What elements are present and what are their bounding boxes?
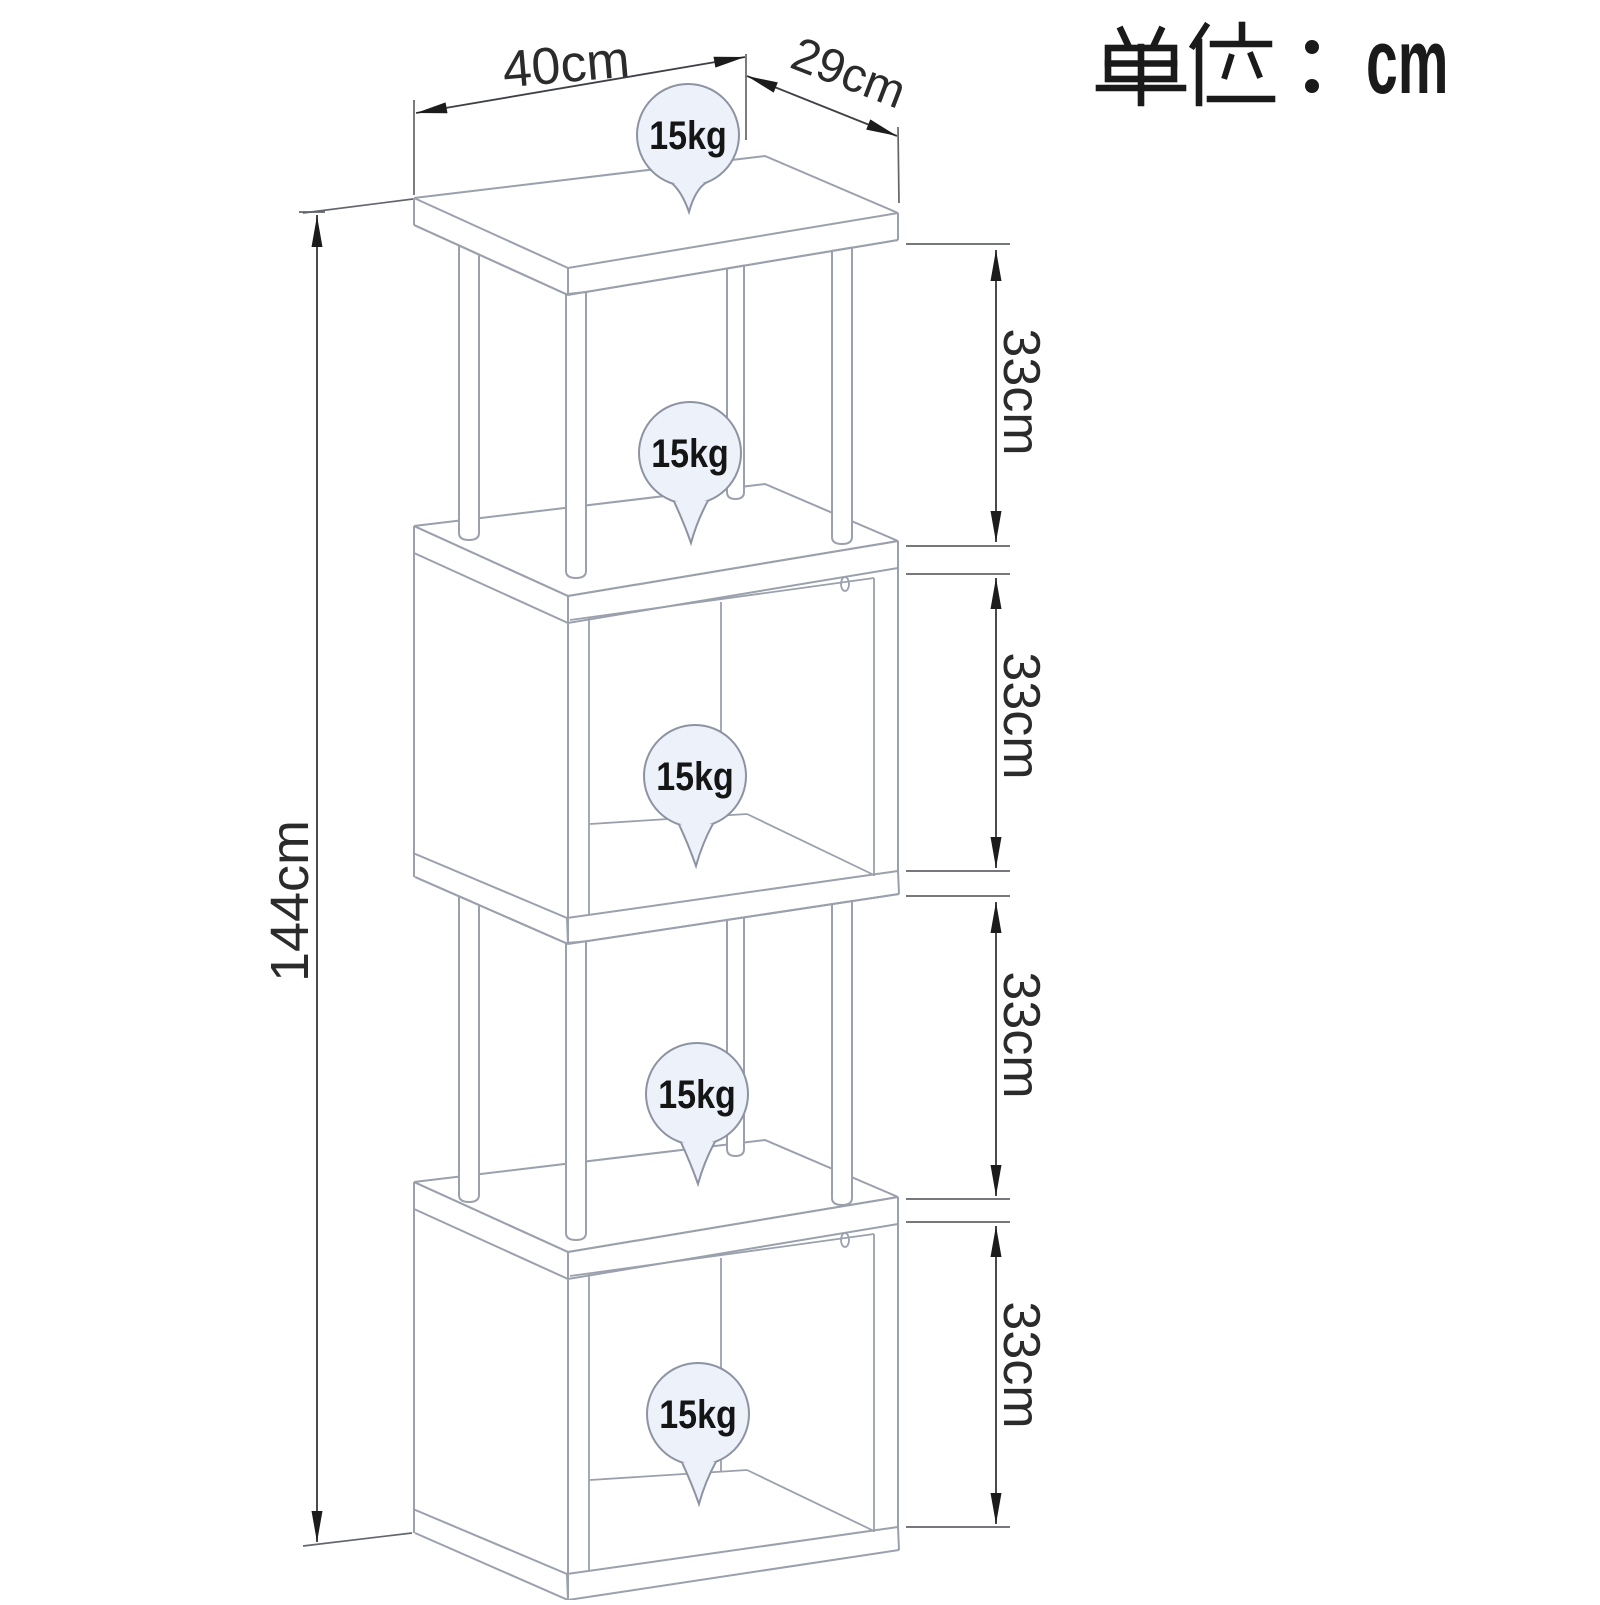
svg-text:33cm: 33cm bbox=[992, 652, 1050, 779]
svg-text:15kg: 15kg bbox=[651, 430, 728, 475]
svg-text:15kg: 15kg bbox=[659, 1391, 736, 1436]
svg-text:33cm: 33cm bbox=[992, 328, 1050, 455]
svg-text:40cm: 40cm bbox=[500, 31, 632, 100]
svg-text:15kg: 15kg bbox=[656, 753, 733, 798]
svg-text:15kg: 15kg bbox=[649, 112, 726, 157]
svg-text:15kg: 15kg bbox=[658, 1071, 735, 1116]
svg-text:33cm: 33cm bbox=[992, 1301, 1050, 1428]
svg-text:33cm: 33cm bbox=[992, 971, 1050, 1098]
svg-text:144cm: 144cm bbox=[260, 820, 320, 982]
svg-text:cm: cm bbox=[1366, 11, 1448, 113]
